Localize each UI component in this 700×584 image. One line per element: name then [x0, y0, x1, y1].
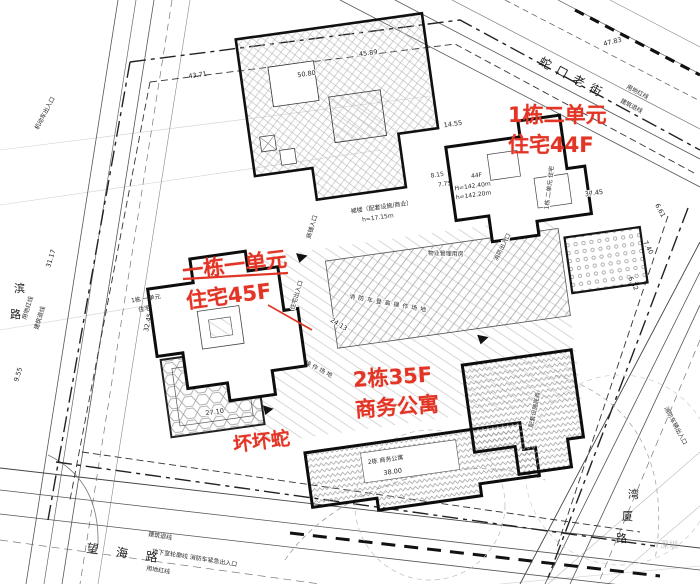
dim-43-71: 43.71 — [188, 70, 208, 81]
site-plan-canvas: 蛇口老街 47.83 用地红线 建筑退线 滨 路 31.17 9.55 32.4… — [0, 0, 700, 584]
cad-linework: 蛇口老街 47.83 用地红线 建筑退线 滨 路 31.17 9.55 32.4… — [0, 0, 700, 584]
pm-house-label: 物业管理用房 — [428, 249, 464, 258]
dim-6-61: 6.61 — [653, 202, 667, 219]
dim-37-45: 37.45 — [584, 188, 604, 199]
dim-31-17: 31.17 — [44, 248, 57, 268]
dim-47-83: 47.83 — [603, 36, 623, 48]
setback-label-bottom: 建筑退线 — [148, 530, 173, 542]
road-label-left-1: 滨 — [14, 281, 25, 295]
amenity-block — [565, 227, 648, 293]
road-label-right-3: 路 — [616, 532, 627, 545]
dim-9-55: 9.55 — [12, 366, 24, 382]
b1u1-use-label: 住宅 — [138, 304, 151, 314]
redline-label-left: 用地红线 — [20, 295, 35, 320]
road-label-right-1: 湾 — [628, 487, 639, 501]
annotation-b2-line2: 商务公寓 — [354, 389, 440, 425]
vehicle-entry-label: 机动车出入口 — [33, 95, 57, 131]
podium-building: 裙楼（配套设施/商业） h=17.15m 50.80 45.89 43.71 1… — [184, 10, 475, 254]
dim-8-15: 8.15 — [430, 171, 444, 180]
shop-entry-label: 商铺入口 — [305, 214, 320, 239]
annotation-building2: 2栋35F 商务公寓 — [352, 359, 440, 425]
fire-vehicle-entry-label: 消防车辆出入口 — [662, 405, 689, 446]
annotation-building1-unit2: 1栋二单元 住宅44F — [508, 100, 607, 160]
redline-label-bottom: 用地红线 — [146, 564, 171, 576]
road-label-right-2: 厦 — [622, 510, 633, 523]
annotation-building1-unit1: 一栋一单元 住宅45F — [181, 244, 293, 316]
dim-14-55: 14.55 — [443, 119, 463, 130]
annotation-b1u2-line1: 1栋二单元 — [508, 100, 607, 130]
annotation-b1u2-line2: 住宅44F — [508, 130, 607, 160]
setback-label-top: 建筑退线 — [619, 97, 644, 115]
watermark-city: 深圳 — [660, 540, 678, 551]
road-label-left-2: 路 — [10, 308, 21, 321]
podium-label: 裙楼（配套设施/商业） — [350, 199, 413, 216]
setback-label-left: 建筑退线 — [32, 305, 47, 330]
podium-height-label: h=17.15m — [362, 212, 395, 223]
